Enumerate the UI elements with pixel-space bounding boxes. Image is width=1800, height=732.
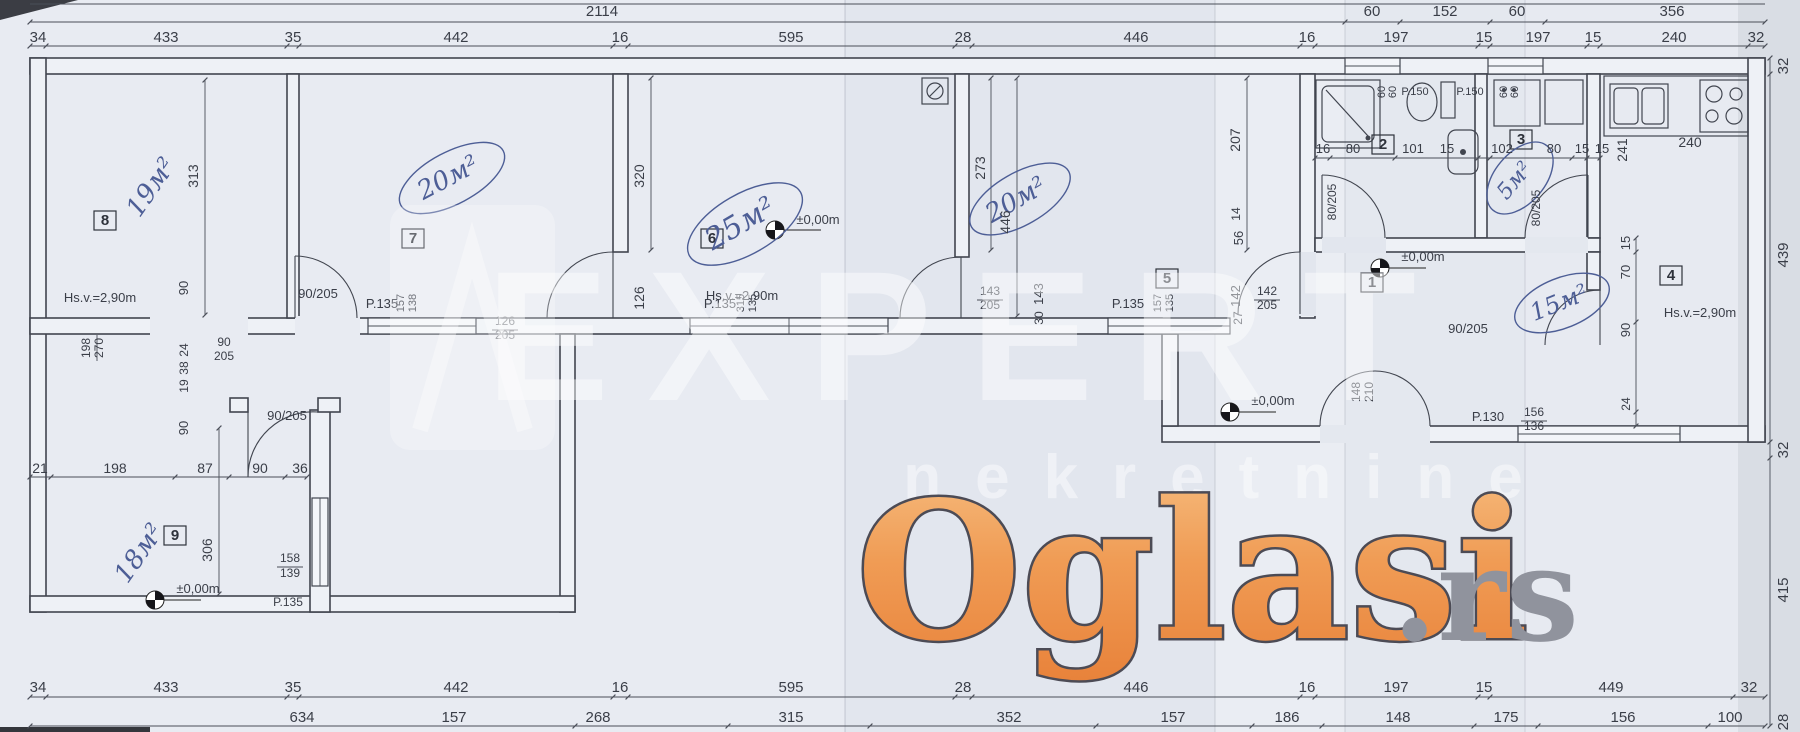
dim-label: 158 (280, 551, 300, 565)
dim-label: 38 (177, 361, 191, 375)
dim-label: 15 (1618, 236, 1633, 250)
dim-label: 157 (1160, 709, 1185, 726)
dim-label: 32 (1741, 679, 1758, 696)
dim-label: 175 (1493, 709, 1518, 726)
dim-label: 60 (1509, 86, 1521, 98)
dim-label: 152 (1432, 3, 1457, 20)
dim-label: 198 (79, 338, 93, 358)
dim-label: 241 (1614, 138, 1630, 162)
dim-label: 313 (185, 164, 201, 188)
dim-label: 90 (217, 335, 231, 349)
dim-label: 19 (177, 379, 191, 393)
window-top-p150-1 (1345, 58, 1400, 74)
dim-label: 433 (153, 29, 178, 46)
dim-total-width: 2114 (586, 3, 618, 20)
room-label-8: 8 (101, 212, 109, 229)
dim-label: 148 (1385, 709, 1410, 726)
dim-label: 207 (1227, 128, 1243, 152)
scanned-floor-plan: 2114601526035634433354421659528446161971… (0, 0, 1800, 732)
dim-label: 446 (1123, 29, 1148, 46)
dim-label: 198 (103, 460, 127, 476)
ceiling-note: Hs.v.=2,90m (1664, 305, 1736, 320)
dim-label: 352 (996, 709, 1021, 726)
dim-label: 595 (778, 29, 803, 46)
dim-label: 16 (1299, 29, 1316, 46)
floor-plan-drawing: 2114601526035634433354421659528446161971… (0, 0, 1800, 732)
dim-label: 442 (443, 679, 468, 696)
level-mark: ±0,00m (176, 581, 219, 596)
window-p135-room9 (312, 498, 328, 586)
dim-label: 197 (1525, 29, 1550, 46)
dim-label: 320 (631, 164, 647, 188)
dim-label: 24 (1619, 397, 1633, 411)
dim-label: 157 (441, 709, 466, 726)
dim-label: 102 (1491, 141, 1513, 156)
dim-label: 273 (972, 156, 988, 180)
dim-label: 80 (1346, 141, 1360, 156)
dim-label: 87 (197, 460, 213, 476)
dim-label: 32 (1775, 442, 1792, 459)
dim-label: 595 (778, 679, 803, 696)
dim-label: 90 (1618, 323, 1633, 337)
dim-label: 446 (997, 210, 1013, 234)
dim-label: 136 (1524, 419, 1544, 433)
dim-label: 433 (153, 679, 178, 696)
dim-label: 100 (1717, 709, 1742, 726)
dim-label: 32 (1748, 29, 1765, 46)
dim-label: 156 (1610, 709, 1635, 726)
dim-label: 306 (199, 538, 215, 562)
window-top-p150-2 (1488, 58, 1543, 74)
dim-label: 15 (1595, 141, 1609, 156)
dim-label: 197 (1383, 29, 1408, 46)
dim-label: 34 (30, 29, 47, 46)
dim-label: 14 (1229, 207, 1243, 221)
dim-label: 28 (1775, 714, 1792, 731)
dim-label: 90 (176, 421, 191, 435)
brand-watermark: Oglasi .rs (856, 460, 1579, 683)
dim-label: 15 (1575, 141, 1589, 156)
window-code: P.135 (273, 595, 303, 609)
dim-label: 186 (1274, 709, 1299, 726)
dim-label: 35 (285, 679, 302, 696)
dim-label: 15 (1585, 29, 1602, 46)
dim-label: 139 (280, 566, 300, 580)
dim-label: 442 (443, 29, 468, 46)
dim-label: 356 (1659, 3, 1684, 20)
dim-label: 28 (955, 29, 972, 46)
window-code: P.130 (1472, 409, 1504, 424)
dim-label: 240 (1678, 134, 1702, 150)
level-mark: ±0,00m (796, 212, 839, 227)
dim-label: 16 (612, 679, 629, 696)
dim-label: 90 (176, 281, 191, 295)
ceiling-note: Hs.v.=2,90m (64, 290, 136, 305)
window-code: P.150 (1401, 86, 1428, 98)
door-size: 90/205 (298, 286, 338, 301)
dim-label: 315 (778, 709, 803, 726)
dim-label: 32 (1775, 58, 1792, 75)
dim-label: 240 (1661, 29, 1686, 46)
dim-label: 449 (1598, 679, 1623, 696)
dim-label: 60 (1509, 3, 1526, 20)
room-label-9: 9 (171, 527, 179, 544)
dim-label: 16 (612, 29, 629, 46)
room-label-2: 2 (1379, 136, 1387, 153)
oglasi-tld: .rs (1392, 518, 1579, 671)
dim-label: 60 (1364, 3, 1381, 20)
dim-label: 80 (1547, 141, 1561, 156)
dim-label: 439 (1775, 242, 1792, 267)
dim-label: 156 (1524, 405, 1544, 419)
dim-label: 268 (585, 709, 610, 726)
dim-label: 415 (1775, 577, 1792, 602)
dim-label: 60 (1387, 86, 1399, 98)
door-size: 90/205 (267, 408, 307, 423)
room-label-3: 3 (1517, 131, 1525, 148)
dim-label: 36 (292, 460, 308, 476)
agency-name-watermark: EXPERT (486, 234, 1454, 440)
dim-label: 35 (285, 29, 302, 46)
dim-label: 270 (92, 338, 106, 358)
dim-label: 205 (214, 349, 234, 363)
dim-label: 34 (30, 679, 47, 696)
dim-label: 15 (1476, 29, 1493, 46)
dim-label: 101 (1402, 141, 1424, 156)
door-size: 80/205 (1529, 189, 1543, 226)
window-code: P.150 (1456, 86, 1483, 98)
dim-label: 70 (1618, 265, 1633, 279)
dim-label: 634 (289, 709, 314, 726)
door-size: 80/205 (1325, 183, 1339, 220)
dim-label: 15 (1440, 141, 1454, 156)
dim-label: 24 (177, 343, 191, 357)
dim-label: 90 (252, 460, 268, 476)
dim-label: 21 (32, 460, 48, 476)
dim-label: 16 (1316, 141, 1330, 156)
room-label-4: 4 (1667, 267, 1676, 284)
